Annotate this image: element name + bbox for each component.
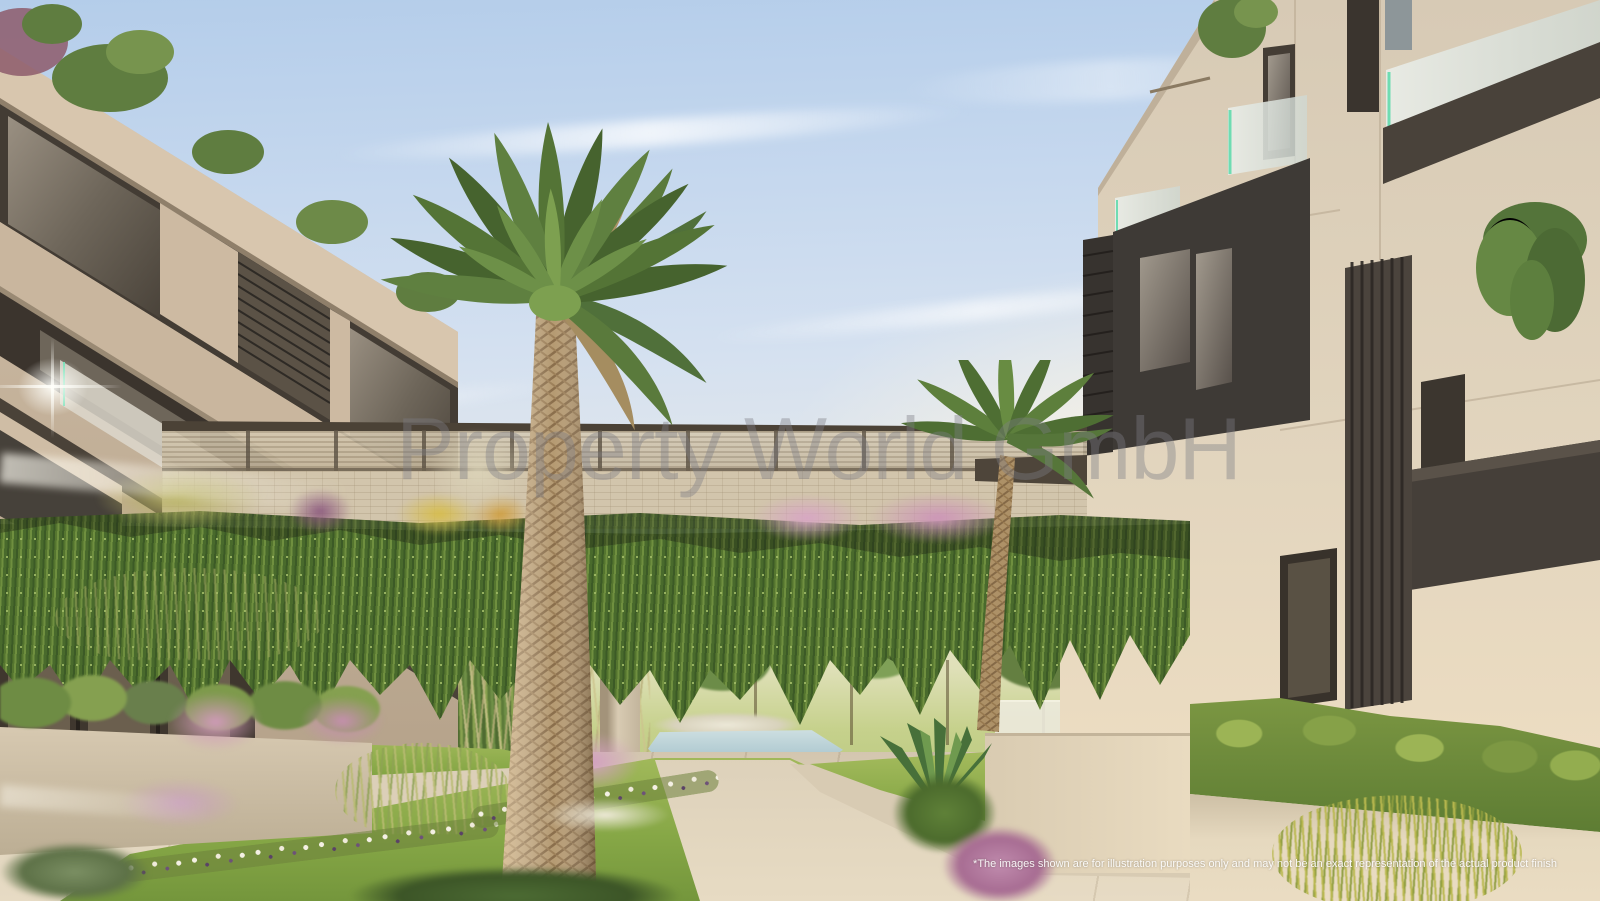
watermark-text: Property World GmbH: [396, 398, 1241, 500]
sun-glint: [18, 358, 88, 416]
right-window-tall: [1347, 0, 1379, 112]
white-flowers-palm-base: [540, 798, 670, 832]
foreground-shrubs: [0, 842, 150, 901]
right-balcony-glass-a: [1228, 95, 1307, 175]
right-window-low: [1421, 374, 1465, 476]
right-building: [1040, 0, 1600, 780]
disclaimer-text: *The images shown are for illustration p…: [973, 858, 1557, 870]
pink-flower-bush: [168, 692, 263, 752]
architectural-render-scene: Property World GmbH *The images shown ar…: [0, 0, 1600, 901]
